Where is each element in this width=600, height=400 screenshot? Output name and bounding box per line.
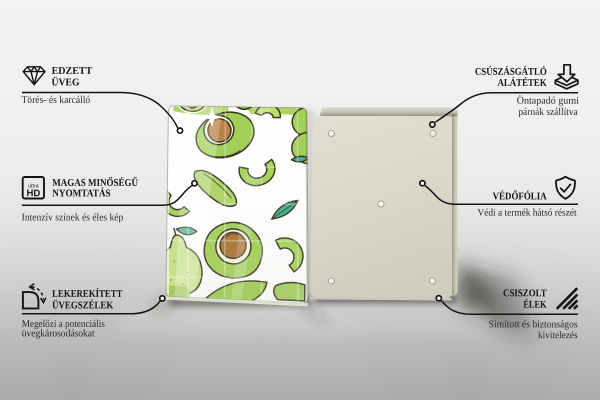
svg-text:ALÁTÉTEK: ALÁTÉTEK — [497, 77, 546, 89]
svg-text:EDZETT: EDZETT — [52, 66, 93, 77]
svg-text:ÜVEG: ÜVEG — [52, 76, 80, 88]
svg-text:Simított és biztonságos: Simított és biztonságos — [489, 319, 578, 330]
svg-text:ÉLEK: ÉLEK — [523, 299, 546, 311]
svg-text:LEKEREKÍTETT: LEKEREKÍTETT — [52, 288, 122, 300]
svg-text:Törés- és karcálló: Törés- és karcálló — [21, 95, 90, 106]
svg-text:üvegkárosodásokat: üvegkárosodásokat — [22, 328, 95, 339]
svg-text:VÉDŐFÓLIA: VÉDŐFÓLIA — [493, 190, 548, 202]
svg-text:Védi a termék hátsó részét: Védi a termék hátsó részét — [477, 208, 576, 219]
svg-text:kivitelezés: kivitelezés — [538, 330, 578, 341]
svg-text:párnák szállítva: párnák szállítva — [518, 107, 578, 118]
svg-text:Öntapadó gumi: Öntapadó gumi — [517, 95, 579, 107]
svg-text:Intenzív színek és éles kép: Intenzív színek és éles kép — [22, 212, 124, 223]
svg-text:MAGAS MINŐSÉGŰ: MAGAS MINŐSÉGŰ — [52, 177, 138, 189]
svg-text:CSISZOLT: CSISZOLT — [503, 288, 547, 299]
svg-text:ÜVEGSZÉLEK: ÜVEGSZÉLEK — [52, 299, 113, 311]
svg-text:CSÚSZÁSGÁTLÓ: CSÚSZÁSGÁTLÓ — [475, 66, 547, 78]
svg-text:HD: HD — [26, 188, 40, 199]
svg-text:NYOMTATÁS: NYOMTATÁS — [52, 187, 111, 199]
